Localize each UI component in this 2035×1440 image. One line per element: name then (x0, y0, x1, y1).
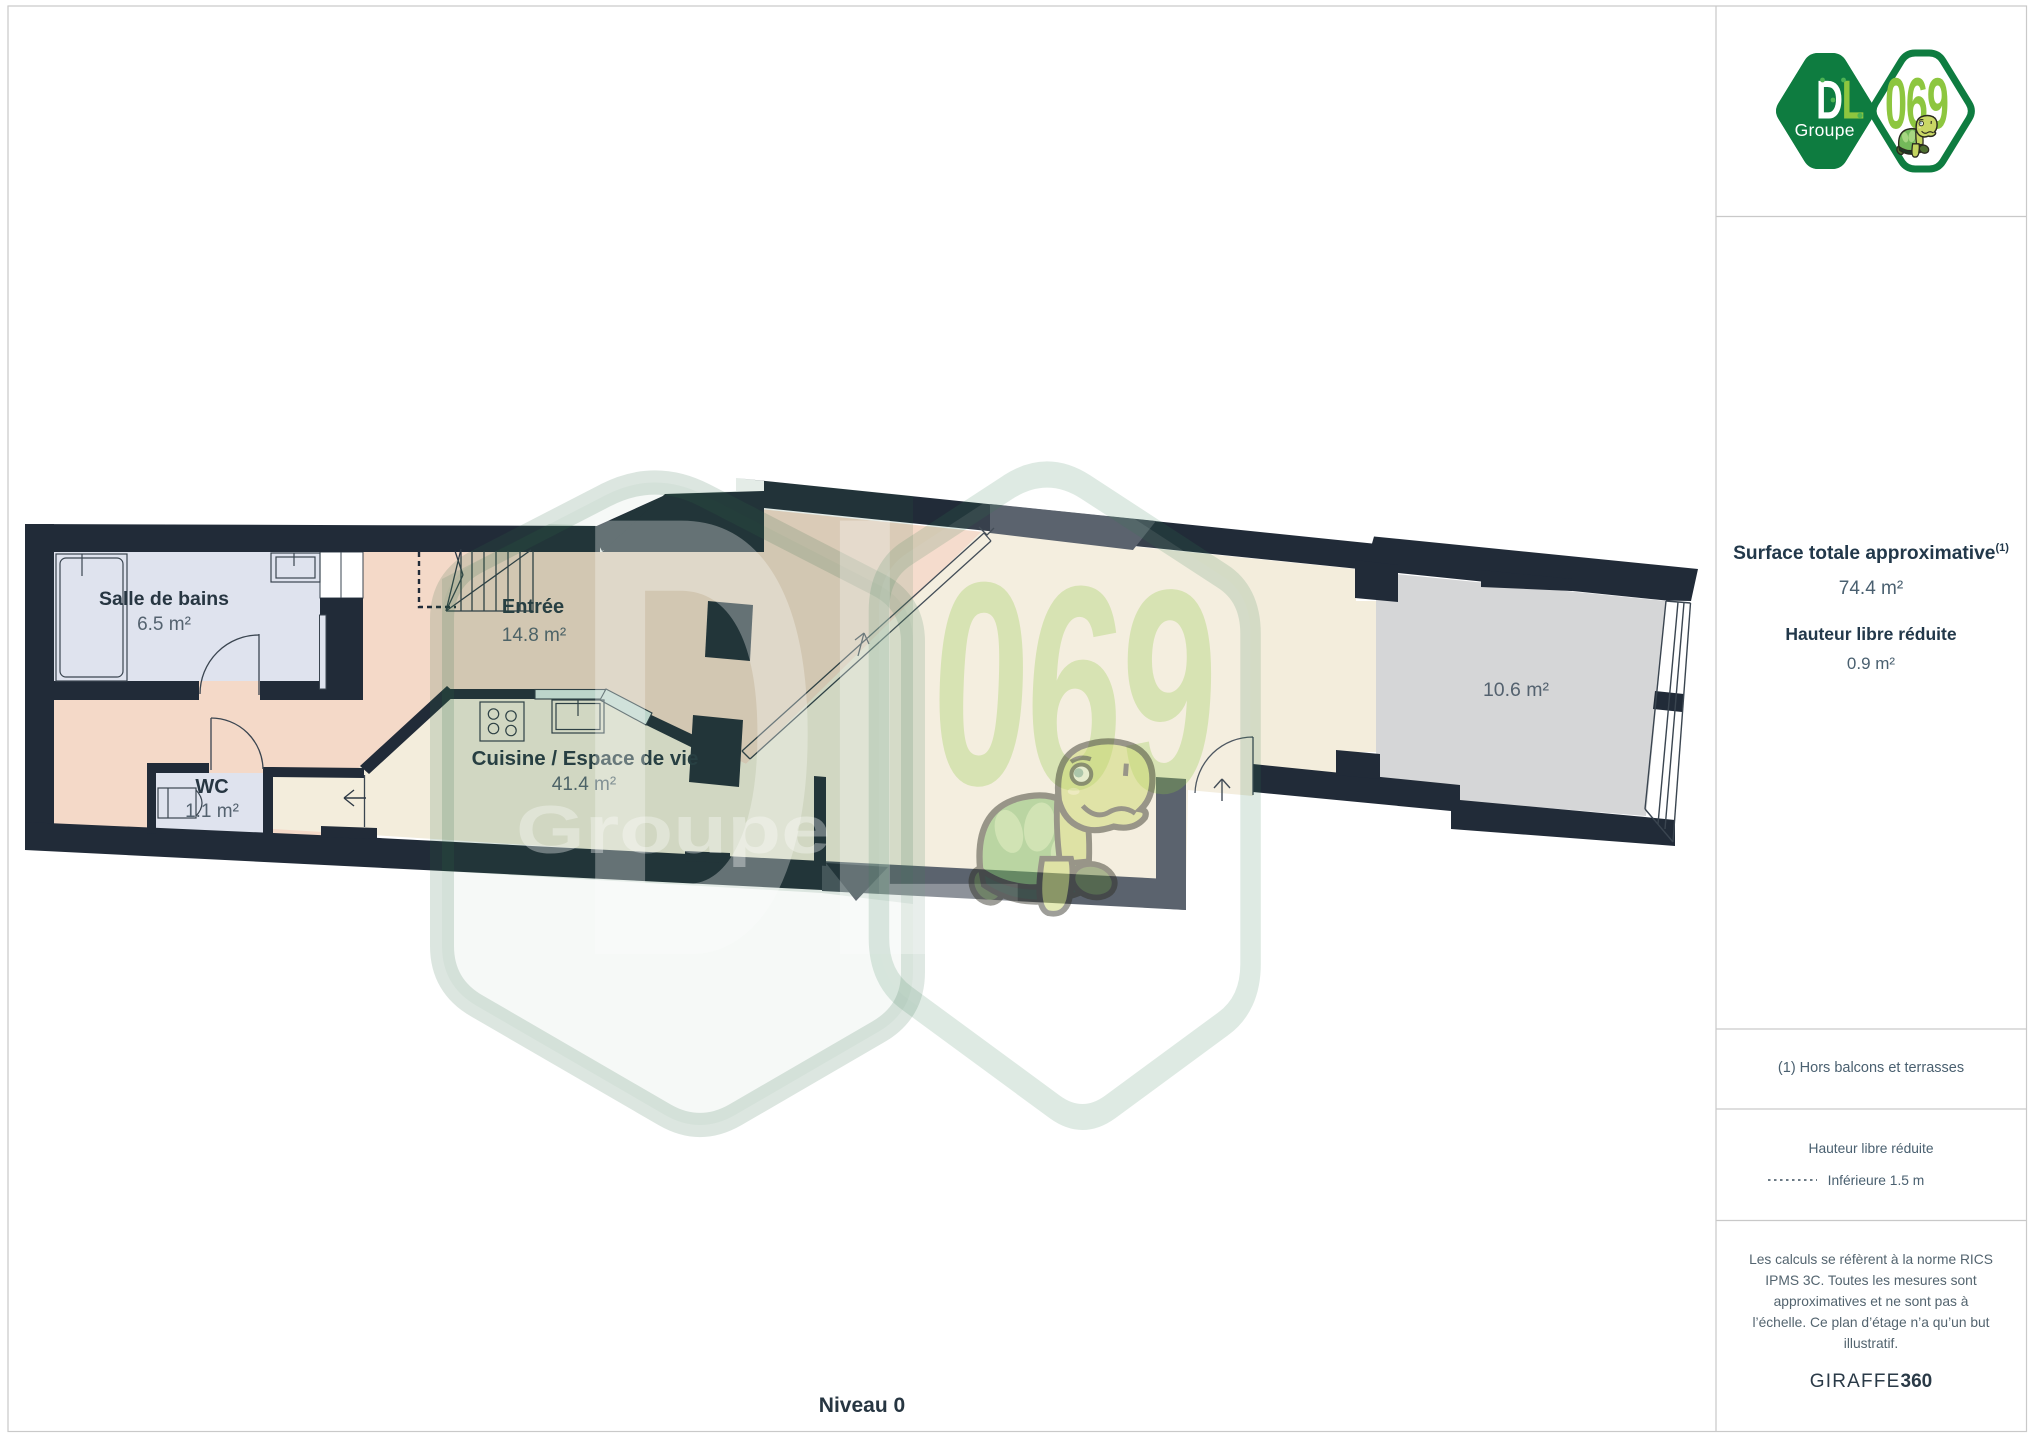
svg-text:(1) Hors balcons et terrasses: (1) Hors balcons et terrasses (1778, 1060, 1964, 1076)
svg-text:GIRAFFE360: GIRAFFE360 (1810, 1371, 1932, 1392)
svg-text:Hauteur libre réduite: Hauteur libre réduite (1785, 624, 1956, 644)
svg-text:74.4 m²: 74.4 m² (1839, 578, 1903, 599)
svg-text:Les calculs se réfèrent à la n: Les calculs se réfèrent à la norme RICS (1749, 1252, 1993, 1267)
svg-text:l’échelle. Ce plan d’étage n’a: l’échelle. Ce plan d’étage n’a qu’un but (1752, 1315, 1989, 1330)
svg-text:Groupe: Groupe (1795, 120, 1855, 140)
svg-text:6.5 m²: 6.5 m² (137, 614, 191, 635)
svg-text:Surface totale approximative(1: Surface totale approximative(1) (1733, 542, 2009, 564)
svg-text:Groupe: Groupe (516, 792, 830, 868)
svg-text:Salle de bains: Salle de bains (99, 588, 229, 610)
svg-text:0.9 m²: 0.9 m² (1847, 654, 1896, 673)
svg-text:Inférieure 1.5 m: Inférieure 1.5 m (1828, 1173, 1925, 1188)
svg-text:illustratif.: illustratif. (1844, 1336, 1898, 1351)
svg-text:WC: WC (195, 776, 228, 798)
svg-text:Hauteur libre réduite: Hauteur libre réduite (1808, 1141, 1933, 1156)
svg-text:10.6 m²: 10.6 m² (1483, 679, 1550, 701)
svg-text:1.1 m²: 1.1 m² (185, 801, 239, 822)
svg-text:Niveau 0: Niveau 0 (819, 1394, 905, 1417)
svg-text:IPMS 3C. Toutes les mesures so: IPMS 3C. Toutes les mesures sont (1765, 1273, 1977, 1288)
svg-text:approximatives et ne sont pas: approximatives et ne sont pas à (1774, 1294, 1969, 1309)
